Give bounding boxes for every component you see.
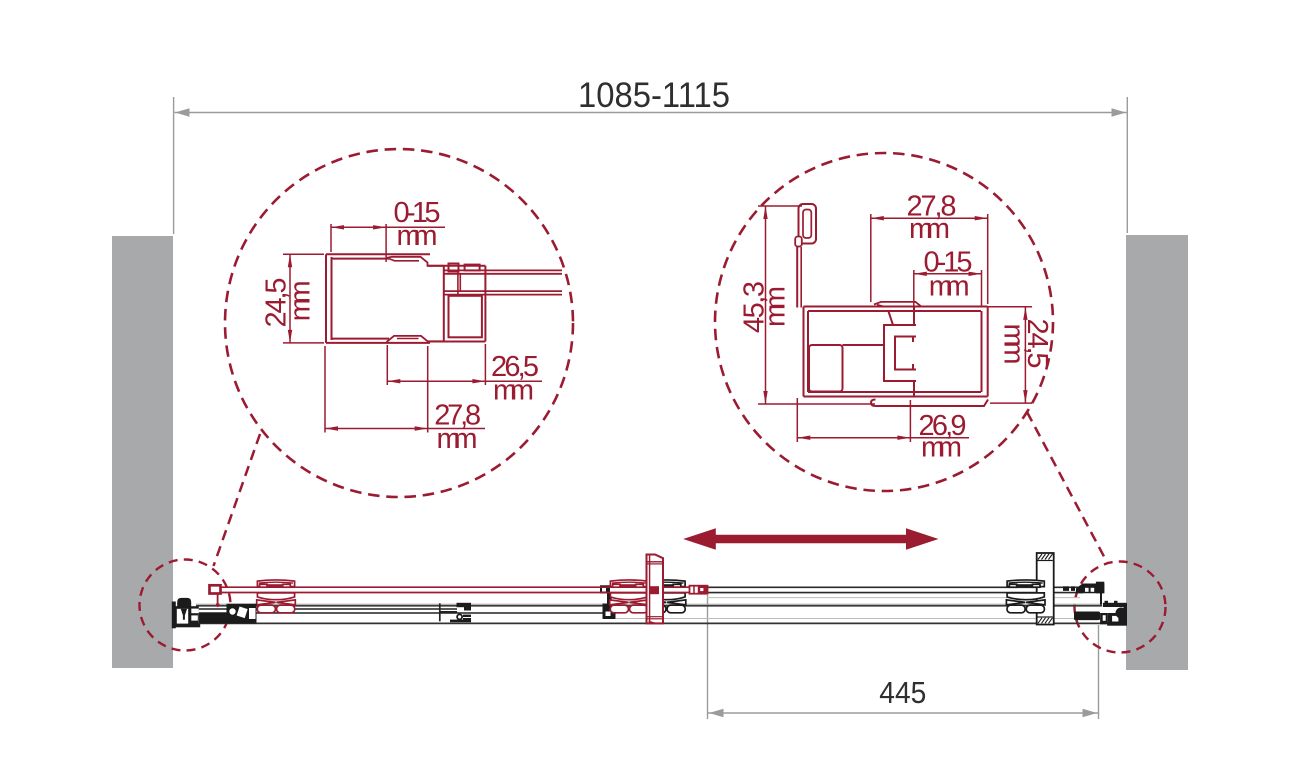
svg-text:mm: mm (921, 432, 962, 464)
svg-text:mm: mm (760, 286, 792, 327)
svg-text:mm: mm (909, 213, 950, 245)
svg-text:mm: mm (285, 280, 317, 321)
svg-text:mm: mm (397, 220, 438, 252)
svg-text:1085-1115: 1085-1115 (578, 75, 730, 115)
svg-text:445: 445 (879, 675, 926, 710)
svg-text:mm: mm (998, 324, 1030, 365)
svg-text:mm: mm (437, 423, 478, 455)
svg-text:mm: mm (493, 375, 534, 407)
svg-text:mm: mm (929, 270, 970, 302)
